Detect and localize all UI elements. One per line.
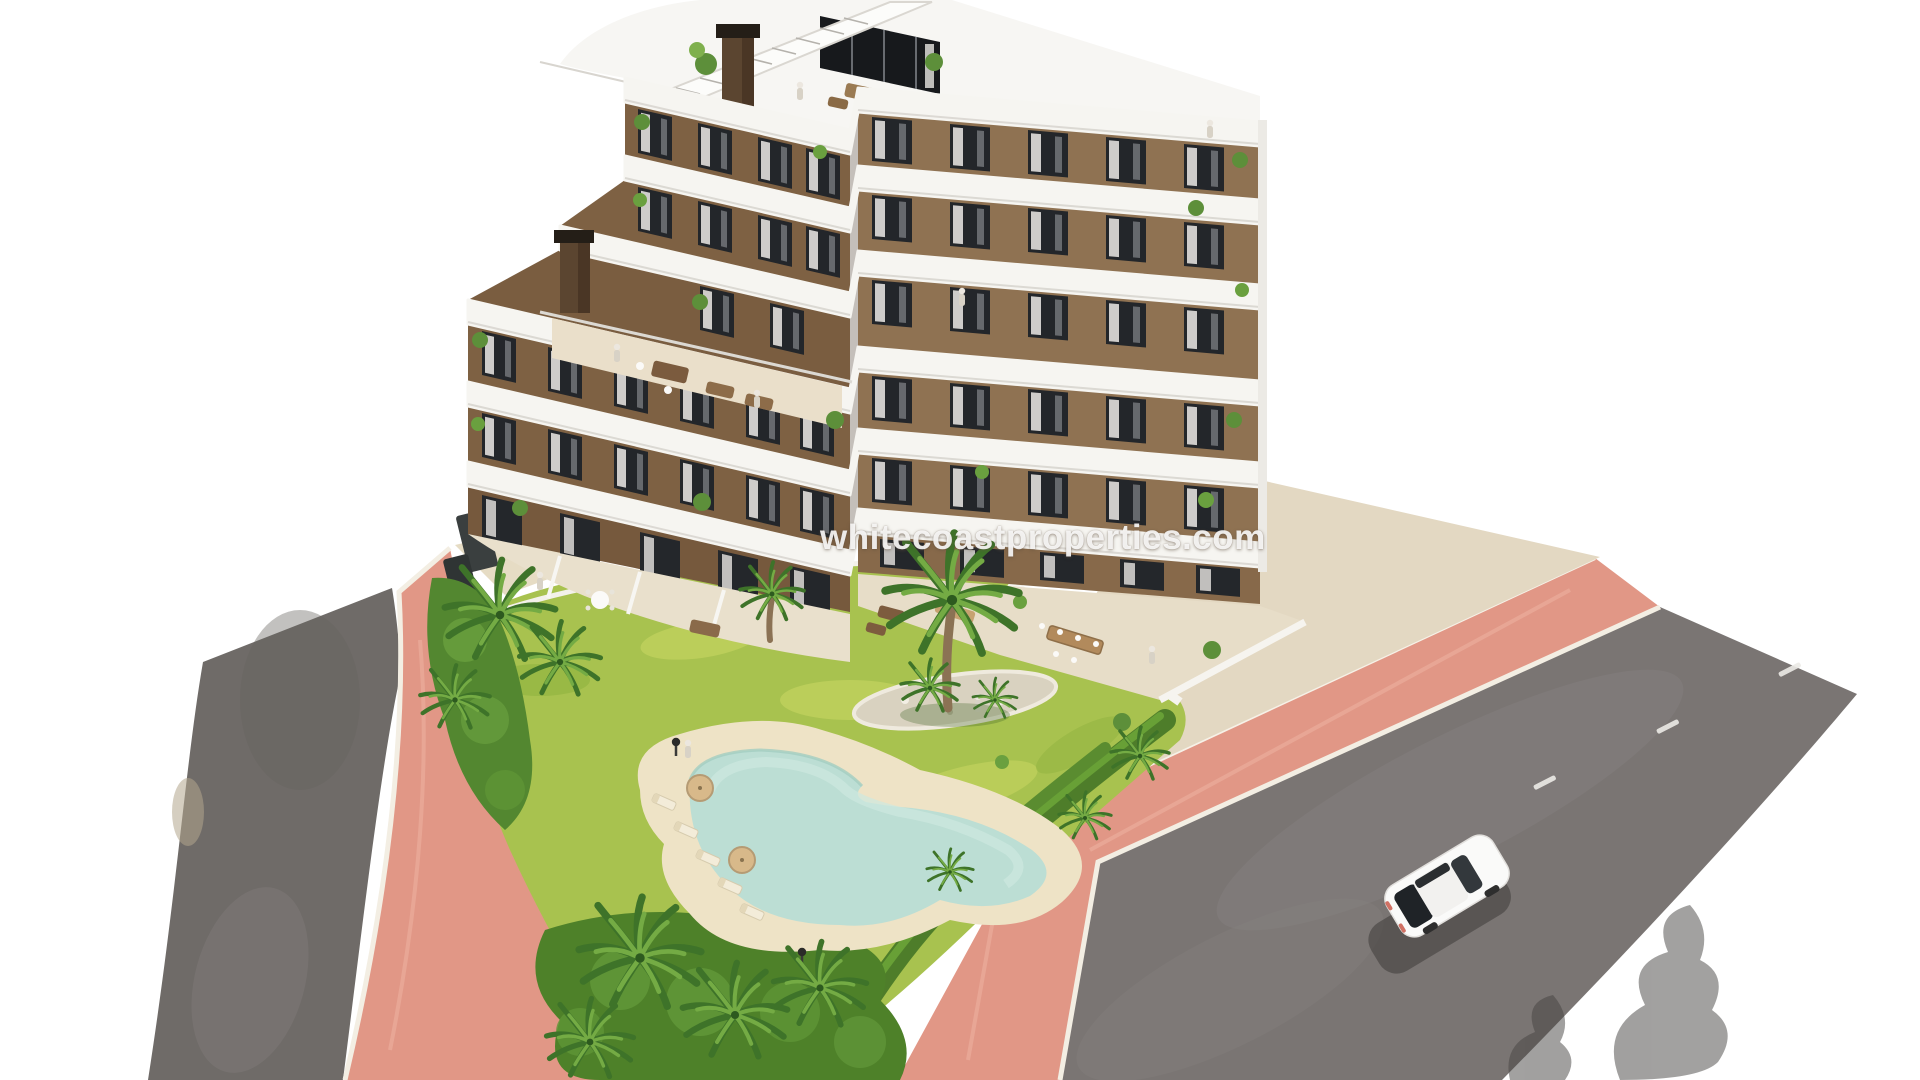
terrace-plant: [1013, 595, 1027, 609]
terrace-plant: [1203, 641, 1221, 659]
roof-plant: [925, 53, 943, 71]
bush: [995, 755, 1009, 769]
person: [537, 572, 543, 590]
parasol: [687, 775, 713, 801]
corner-notch-shade: [850, 88, 858, 575]
patio-table: [591, 591, 609, 609]
person: [1149, 646, 1155, 664]
person: [959, 288, 965, 306]
bush: [1113, 713, 1131, 731]
person: [797, 82, 803, 100]
roof-plant: [689, 42, 705, 58]
terrace-plant: [826, 411, 844, 429]
person: [685, 740, 691, 758]
person: [614, 344, 620, 362]
building-right-face: [1258, 120, 1267, 572]
person: [754, 390, 760, 408]
parasol: [729, 847, 755, 873]
render-canvas: whitecoastproperties.com: [0, 0, 1920, 1080]
render-scene: [0, 0, 1920, 1080]
chimney: [554, 230, 594, 243]
person: [1207, 120, 1213, 138]
chimney: [716, 24, 760, 38]
